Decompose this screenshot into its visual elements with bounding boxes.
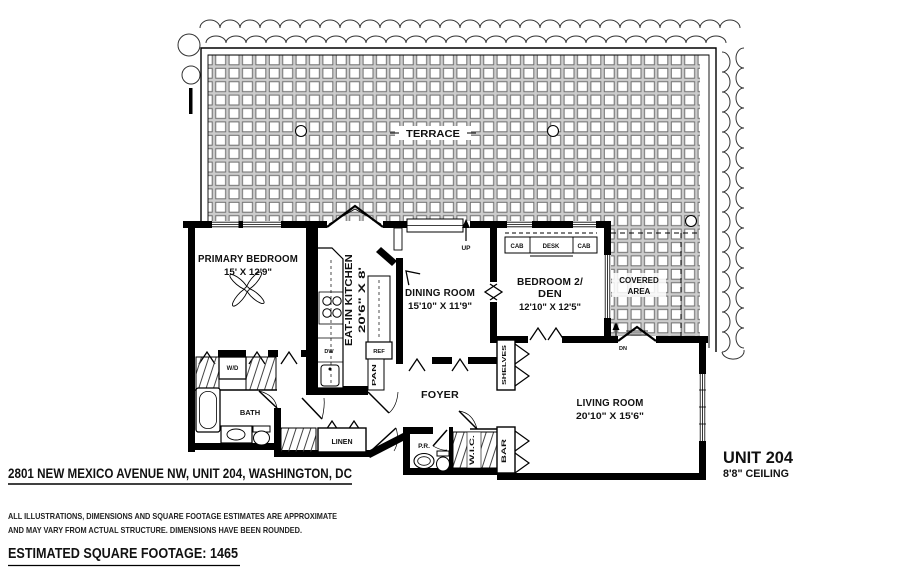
toilet-icon <box>437 457 450 471</box>
closet-hatched <box>246 357 276 390</box>
hedge-top-row2 <box>206 36 726 43</box>
bifold-doors <box>515 344 529 473</box>
disclaimer-line1: ALL ILLUSTRATIONS, DIMENSIONS AND SQUARE… <box>8 512 337 521</box>
bar-label: BAR <box>501 438 508 463</box>
kitchen-dims: 20'6" X 8' <box>357 267 368 333</box>
hedge-right-row2 <box>736 48 744 348</box>
pr-label: P.R. <box>418 443 430 450</box>
shelves-label: SHELVES <box>502 345 508 385</box>
kitchen-cabinet-run <box>368 276 390 342</box>
desk-label: DESK <box>543 244 560 250</box>
toilet-icon <box>254 431 270 445</box>
bedroom2-label2: DEN <box>538 288 562 300</box>
bedroom2-dims: 12'10" X 12'5" <box>519 302 581 313</box>
pan-label: PAN <box>372 364 378 386</box>
living-room-window <box>699 374 706 441</box>
tall-cabinet <box>394 228 402 250</box>
primary-bedroom-window <box>212 221 281 228</box>
toilet-tank <box>437 451 449 456</box>
faucet-icon <box>329 368 332 371</box>
closet-hatched <box>281 428 316 452</box>
door-chevron <box>409 359 425 371</box>
sink-icon <box>414 454 434 469</box>
primary-bedroom-dims: 15' X 12'9" <box>224 267 272 278</box>
bush-icon <box>178 34 200 56</box>
square-footage: ESTIMATED SQUARE FOOTAGE: 1465 <box>8 546 238 562</box>
covered-area-label2: AREA <box>628 287 651 296</box>
up-label: UP <box>461 245 471 252</box>
sink-inner <box>418 457 431 466</box>
unit-label: UNIT 204 <box>723 448 794 467</box>
door-chevron <box>490 284 502 300</box>
wic-label: W.I.C. <box>470 434 476 465</box>
annotations: 2801 NEW MEXICO AVENUE NW, UNIT 204, WAS… <box>8 448 794 566</box>
door-chevron <box>530 328 546 340</box>
dn-label: DN <box>619 346 627 352</box>
cab-label: CAB <box>511 244 525 250</box>
kitchen-label: EAT-IN KITCHEN <box>343 254 355 346</box>
covered-area-label1: COVERED <box>619 276 659 285</box>
ref-label: REF <box>373 349 385 355</box>
wd-label: W/D <box>227 366 239 372</box>
living-room-label: LIVING ROOM <box>577 397 644 409</box>
closet-hatched <box>196 357 219 390</box>
dw-label: DW <box>324 349 334 355</box>
door-chevron <box>281 352 297 364</box>
door-chevron <box>452 359 468 371</box>
drain-icon <box>548 126 559 137</box>
bedroom2-label1: BEDROOM 2/ <box>517 276 583 288</box>
drain-icon <box>686 216 697 227</box>
door-chevron <box>400 265 420 285</box>
floor-plan-drawing: TERRACE COVERED AREA UP <box>0 0 900 570</box>
floor-plan-page: TERRACE COVERED AREA UP <box>0 0 900 570</box>
dining-room-dims: 15'10" X 11'9" <box>408 301 472 312</box>
address-line: 2801 NEW MEXICO AVENUE NW, UNIT 204, WAS… <box>8 466 352 481</box>
ceiling-label: 8'8" CEILING <box>723 468 789 480</box>
foyer-label: FOYER <box>421 389 459 401</box>
living-room-dims: 20'10" X 15'6" <box>576 411 644 422</box>
cab-label: CAB <box>578 244 592 250</box>
vanity <box>221 426 252 443</box>
door-chevron <box>548 328 564 340</box>
bath-label: BATH <box>240 408 260 417</box>
room-labels: PRIMARY BEDROOM 15' X 12'9" EAT-IN KITCH… <box>198 253 644 450</box>
linen-label: LINEN <box>332 439 353 446</box>
disclaimer-line2: AND MAY VARY FROM ACTUAL STRUCTURE. DIME… <box>8 526 302 535</box>
bush-stem <box>189 88 193 114</box>
terrace-label: TERRACE <box>406 129 460 140</box>
primary-bedroom-label: PRIMARY BEDROOM <box>198 253 298 265</box>
door-chevron <box>485 284 497 300</box>
bush-icon <box>182 66 200 84</box>
drain-icon <box>296 126 307 137</box>
hedge-top-row1 <box>200 20 740 28</box>
hedge-right-row1 <box>722 52 730 352</box>
dining-room-label: DINING ROOM <box>405 287 475 299</box>
